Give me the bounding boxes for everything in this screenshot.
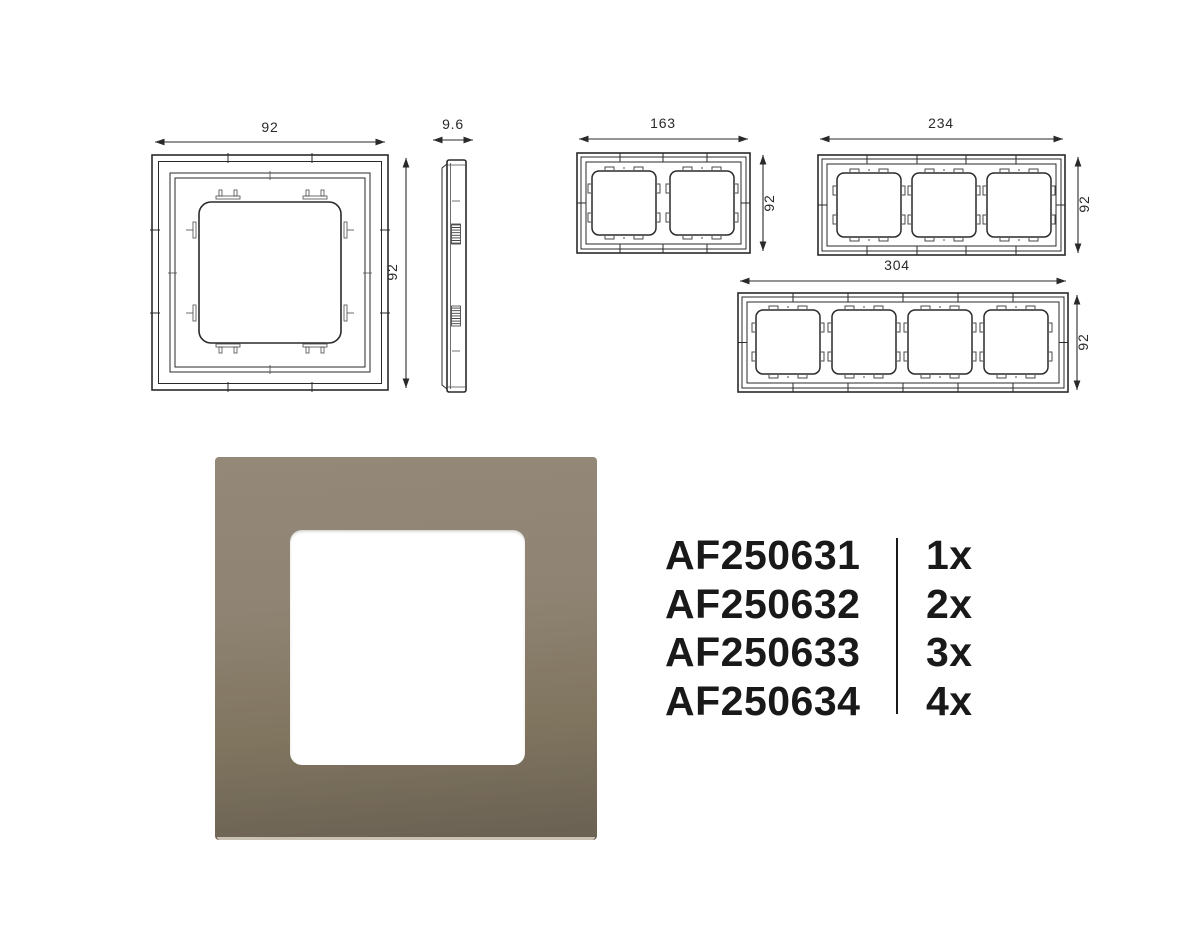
part-sku: AF250633 (665, 628, 896, 677)
dim-label-3gang-width: 234 (928, 115, 954, 131)
side-view-drawing: 9.6 (433, 116, 473, 392)
dim-label-3gang-height: 92 (1076, 195, 1092, 212)
part-qty: 1x (896, 531, 976, 580)
two-gang-drawing: 163 92 (577, 115, 777, 253)
part-qty: 2x (896, 580, 976, 629)
technical-drawings: 92 92 9.6 163 (0, 0, 1200, 430)
dim-label-single-height: 92 (384, 263, 400, 280)
parts-list: AF250631 1x AF250632 2x AF250633 3x AF25… (665, 531, 976, 725)
part-sku: AF250631 (665, 531, 896, 580)
three-gang-drawing: 234 92 (818, 115, 1092, 255)
part-row: AF250633 3x (665, 628, 976, 677)
part-row: AF250634 4x (665, 677, 976, 726)
dim-label-single-width: 92 (261, 119, 278, 135)
product-photo (215, 457, 597, 840)
four-gang-drawing: 304 92 (738, 257, 1091, 392)
single-frame-drawing: 92 92 (150, 119, 406, 392)
page: 92 92 9.6 163 (0, 0, 1200, 933)
parts-divider-line (896, 538, 898, 714)
part-sku: AF250634 (665, 677, 896, 726)
dim-label-4gang-height: 92 (1075, 333, 1091, 350)
frame-bottom-highlight (217, 837, 595, 840)
dim-label-2gang-width: 163 (650, 115, 676, 131)
product-opening (290, 530, 525, 765)
part-row: AF250631 1x (665, 531, 976, 580)
part-sku: AF250632 (665, 580, 896, 629)
dim-label-4gang-width: 304 (884, 257, 910, 273)
part-qty: 4x (896, 677, 976, 726)
dim-label-side-depth: 9.6 (442, 116, 464, 132)
part-row: AF250632 2x (665, 580, 976, 629)
part-qty: 3x (896, 628, 976, 677)
dim-label-2gang-height: 92 (761, 194, 777, 211)
